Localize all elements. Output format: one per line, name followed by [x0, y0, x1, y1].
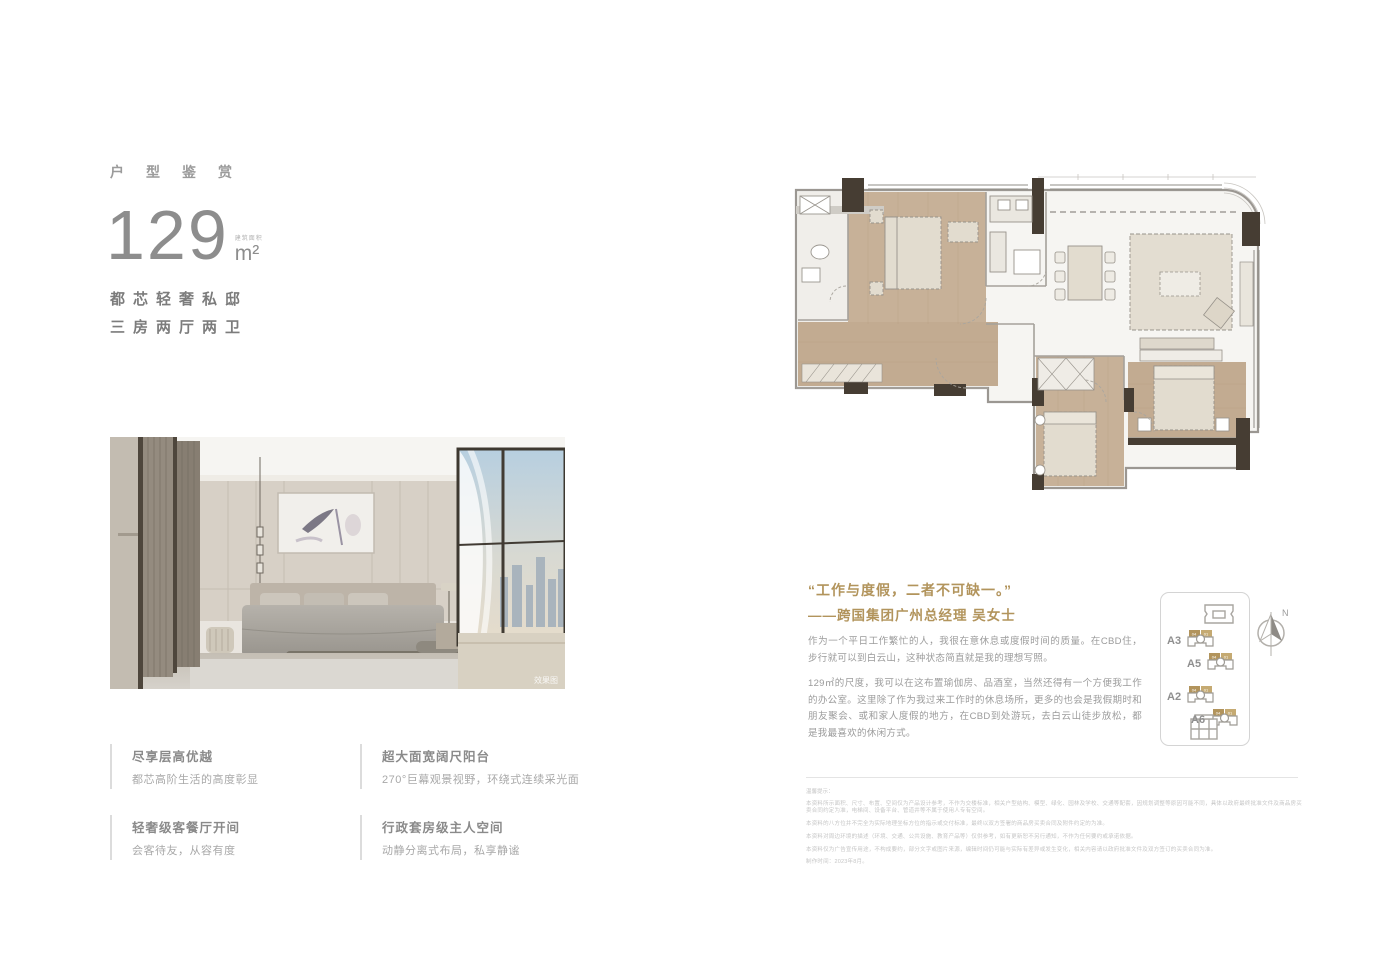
feature-title: 轻奢级客餐厅开间 — [132, 817, 360, 836]
disclaimer-line: 本资料对周边环境的描述（环境、交通、公共设施、教育产品等）仅供参考，如有更新恕不… — [806, 834, 1306, 841]
feature-item-1: 尽享层高优越 都芯高阶生活的高度彰显 — [110, 744, 360, 789]
disclaimer: 温馨提示： 本资料所示面积、尺寸、布置、空间仅为产品设计参考，不作为交楼标准，相… — [806, 787, 1306, 872]
section-eyebrow: 户型鉴赏 — [110, 162, 254, 182]
tagline-1: 都芯轻奢私邸 — [110, 288, 248, 309]
floor-plan — [788, 170, 1268, 507]
unit-icon-a5: 04 01 — [1208, 653, 1233, 669]
artwork — [278, 493, 374, 553]
area-unit: m² — [235, 243, 263, 264]
compass-north-label: N — [1282, 608, 1289, 618]
feature-list: 尽享层高优越 都芯高阶生活的高度彰显 超大面宽阔尺阳台 270°巨幕观景视野，环… — [110, 744, 590, 860]
disclaimer-title: 温馨提示： — [806, 787, 1306, 795]
svg-text:01: 01 — [1204, 632, 1209, 637]
feature-item-2: 超大面宽阔尺阳台 270°巨幕观景视野，环绕式连续采光面 — [360, 744, 590, 789]
stool — [206, 627, 234, 653]
unit-label-a3: A3 — [1167, 635, 1181, 647]
testimonial-quote: “工作与度假，二者不可缺一。” — [808, 580, 1012, 600]
testimonial-attribution: ——跨国集团广州总经理 吴女士 — [808, 604, 1016, 624]
feature-item-4: 行政套房级主人空间 动静分离式布局，私享静谧 — [360, 815, 590, 860]
feature-title: 尽享层高优越 — [132, 746, 360, 765]
feature-title: 行政套房级主人空间 — [382, 817, 590, 836]
bed — [242, 583, 444, 657]
feature-desc: 270°巨幕观景视野，环绕式连续采光面 — [382, 771, 590, 787]
tagline-2: 三房两厅两卫 — [110, 316, 248, 337]
feature-desc: 会客待友，从容有度 — [132, 842, 360, 858]
disclaimer-line: 本资料仅为广告宣传用途，不构成要约，部分文字或图片来源，编辑时间仍可能与实际有差… — [806, 847, 1306, 854]
testimonial-paragraph-1: 作为一个平日工作繁忙的人，我很在意休息或度假时间的质量。在CBD住，步行就可以到… — [808, 634, 1142, 667]
floor-plan-drawing — [788, 170, 1268, 502]
site-plan-drawing: 04 01 04 01 04 01 04 — [1161, 593, 1249, 745]
area-number: 129 — [106, 202, 229, 268]
compass-icon: N — [1252, 604, 1296, 665]
building-icon-top — [1205, 605, 1233, 623]
disclaimer-line: 制作时间：2023年8月。 — [806, 859, 1306, 866]
dining-area — [1055, 246, 1115, 300]
area-figure: 129 建筑面积 m² — [106, 202, 263, 268]
window-city-view — [458, 449, 565, 645]
svg-text:04: 04 — [1192, 632, 1197, 637]
svg-text:04: 04 — [1192, 688, 1197, 693]
bedroom-photo: 效果图 — [110, 437, 565, 689]
svg-text:01: 01 — [1224, 655, 1229, 660]
unit-icon-a2: 04 01 — [1188, 686, 1213, 702]
unit-label-a5: A5 — [1187, 658, 1201, 670]
unit-icon-a3: 04 01 — [1188, 630, 1213, 646]
disclaimer-line: 本资料所示面积、尺寸、布置、空间仅为产品设计参考，不作为交楼标准，相关户型结构、… — [806, 801, 1306, 815]
svg-text:04: 04 — [1216, 711, 1221, 716]
feature-desc: 都芯高阶生活的高度彰显 — [132, 771, 360, 787]
feature-desc: 动静分离式布局，私享静谧 — [382, 842, 590, 858]
site-plan: 04 01 04 01 04 01 04 — [1160, 592, 1250, 746]
feature-item-3: 轻奢级客餐厅开间 会客待友，从容有度 — [110, 815, 360, 860]
svg-text:01: 01 — [1228, 711, 1233, 716]
disclaimer-divider — [806, 777, 1298, 778]
svg-text:01: 01 — [1204, 688, 1209, 693]
brochure-page: 户型鉴赏 129 建筑面积 m² 都芯轻奢私邸 三房两厅两卫 — [0, 0, 1400, 956]
svg-text:04: 04 — [1212, 655, 1217, 660]
wardrobe-hatch — [802, 364, 882, 382]
glass-partition — [110, 437, 200, 689]
bedroom-photo-art: 效果图 — [110, 437, 565, 689]
unit-label-a2: A2 — [1167, 691, 1181, 703]
middle-bedroom — [1035, 358, 1096, 476]
testimonial-paragraph-2: 129㎡的尺度，我可以在这布置瑜伽房、品酒室，当然还得有一个方便我工作的办公室。… — [808, 676, 1142, 743]
photo-watermark: 效果图 — [534, 675, 558, 685]
unit-label-a6: A6 — [1191, 714, 1205, 726]
disclaimer-line: 本资料的八方位并不完全为实际地理坐标方位的指示或交付标准，最终以双方签署的商品房… — [806, 821, 1306, 828]
feature-title: 超大面宽阔尺阳台 — [382, 746, 590, 765]
